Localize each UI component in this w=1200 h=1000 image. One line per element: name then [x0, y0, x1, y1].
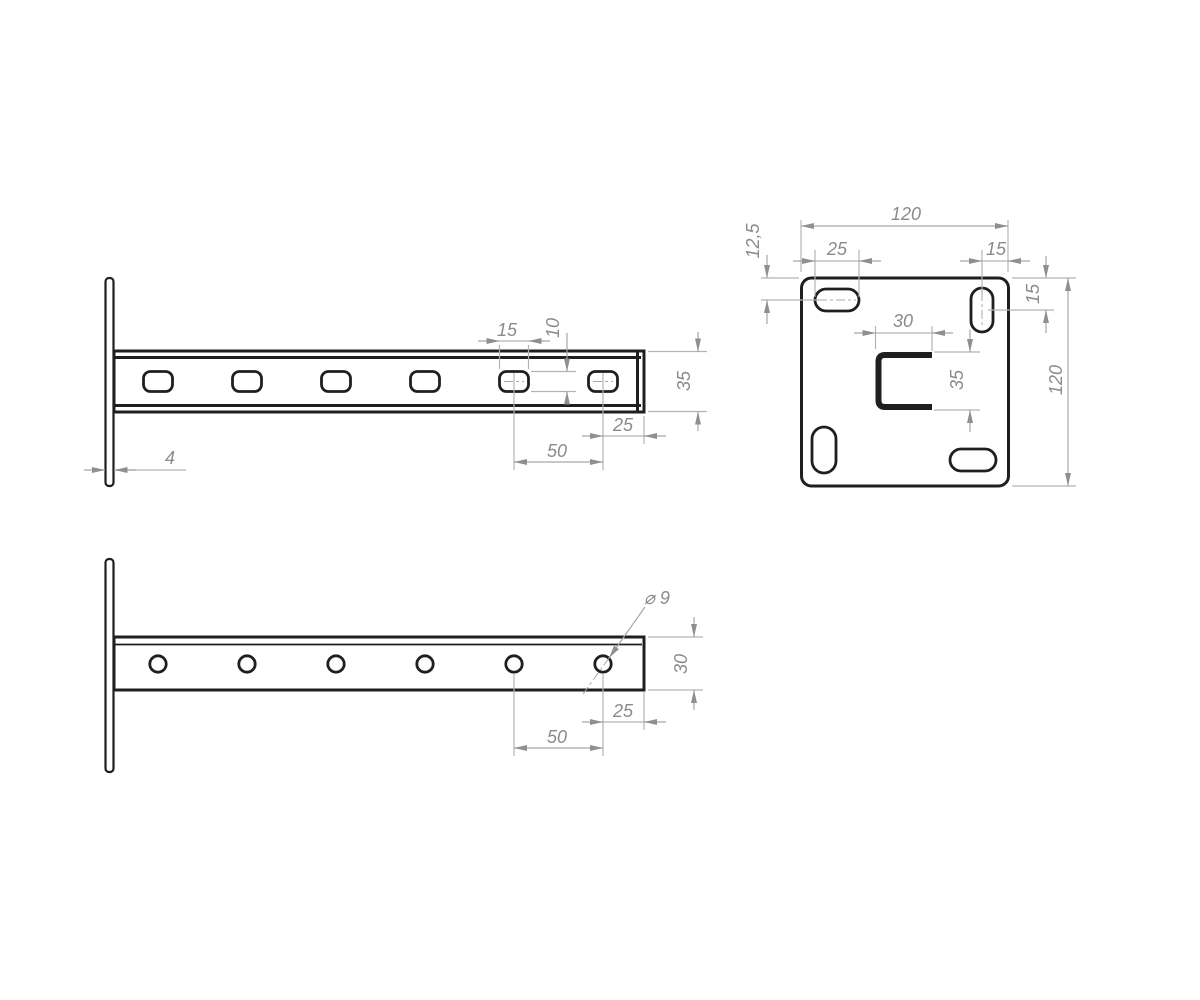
- top-view: ⌀ 9 30 25 50: [106, 559, 704, 772]
- top-hole-5: [506, 656, 522, 672]
- side-slot-4: [411, 372, 440, 392]
- dim-plate-slot-top-offset-label: 12,5: [743, 223, 763, 259]
- dim-side-slot-pitch-label: 50: [547, 441, 567, 461]
- drawing-canvas: 15 10 35 25: [0, 0, 1200, 1000]
- dim-hole-diameter-label: ⌀ 9: [644, 588, 670, 608]
- dim-top-end-offset-label: 25: [612, 701, 634, 721]
- dim-side-beam-height: 35: [648, 332, 707, 431]
- top-hole-2: [239, 656, 255, 672]
- dim-plate-height-label: 120: [1046, 365, 1066, 395]
- dim-channel-width-label: 30: [893, 311, 913, 331]
- drawing-page: 15 10 35 25: [0, 0, 1200, 1000]
- dim-top-hole-pitch-label: 50: [547, 727, 567, 747]
- side-beam: [114, 351, 644, 412]
- dim-side-plate-thickness: 4: [84, 448, 186, 470]
- dim-channel-height-label: 35: [947, 369, 967, 390]
- side-slot-2: [233, 372, 262, 392]
- plate-slot-bottom-left: [812, 427, 836, 473]
- side-view: 15 10 35 25: [84, 278, 707, 486]
- side-wall-plate: [106, 278, 114, 486]
- plate-view: 120 25 15 12,5: [743, 204, 1076, 486]
- top-hole-1: [150, 656, 166, 672]
- dim-side-slot-length-label: 15: [497, 320, 518, 340]
- side-slot-1: [144, 372, 173, 392]
- dim-side-end-offset-label: 25: [612, 415, 634, 435]
- top-hole-4: [417, 656, 433, 672]
- dim-side-slot-width-label: 10: [543, 318, 563, 338]
- plate-slot-bottom-right: [950, 449, 996, 471]
- dim-plate-slot-right-offset-label: 15: [1023, 283, 1043, 304]
- dim-plate-height: 120: [1012, 278, 1076, 486]
- dim-plate-width-label: 120: [891, 204, 921, 224]
- dim-top-beam-width-label: 30: [671, 654, 691, 674]
- dim-plate-slot-length-label: 25: [826, 239, 848, 259]
- top-hole-3: [328, 656, 344, 672]
- side-slot-3: [322, 372, 351, 392]
- dim-side-beam-height-label: 35: [674, 370, 694, 391]
- dim-side-plate-thickness-label: 4: [165, 448, 175, 468]
- dim-plate-width: 120: [801, 204, 1008, 272]
- dim-plate-slot-edge-offset-label: 15: [986, 239, 1007, 259]
- dim-top-beam-width: 30: [648, 617, 703, 710]
- top-wall-plate: [106, 559, 114, 772]
